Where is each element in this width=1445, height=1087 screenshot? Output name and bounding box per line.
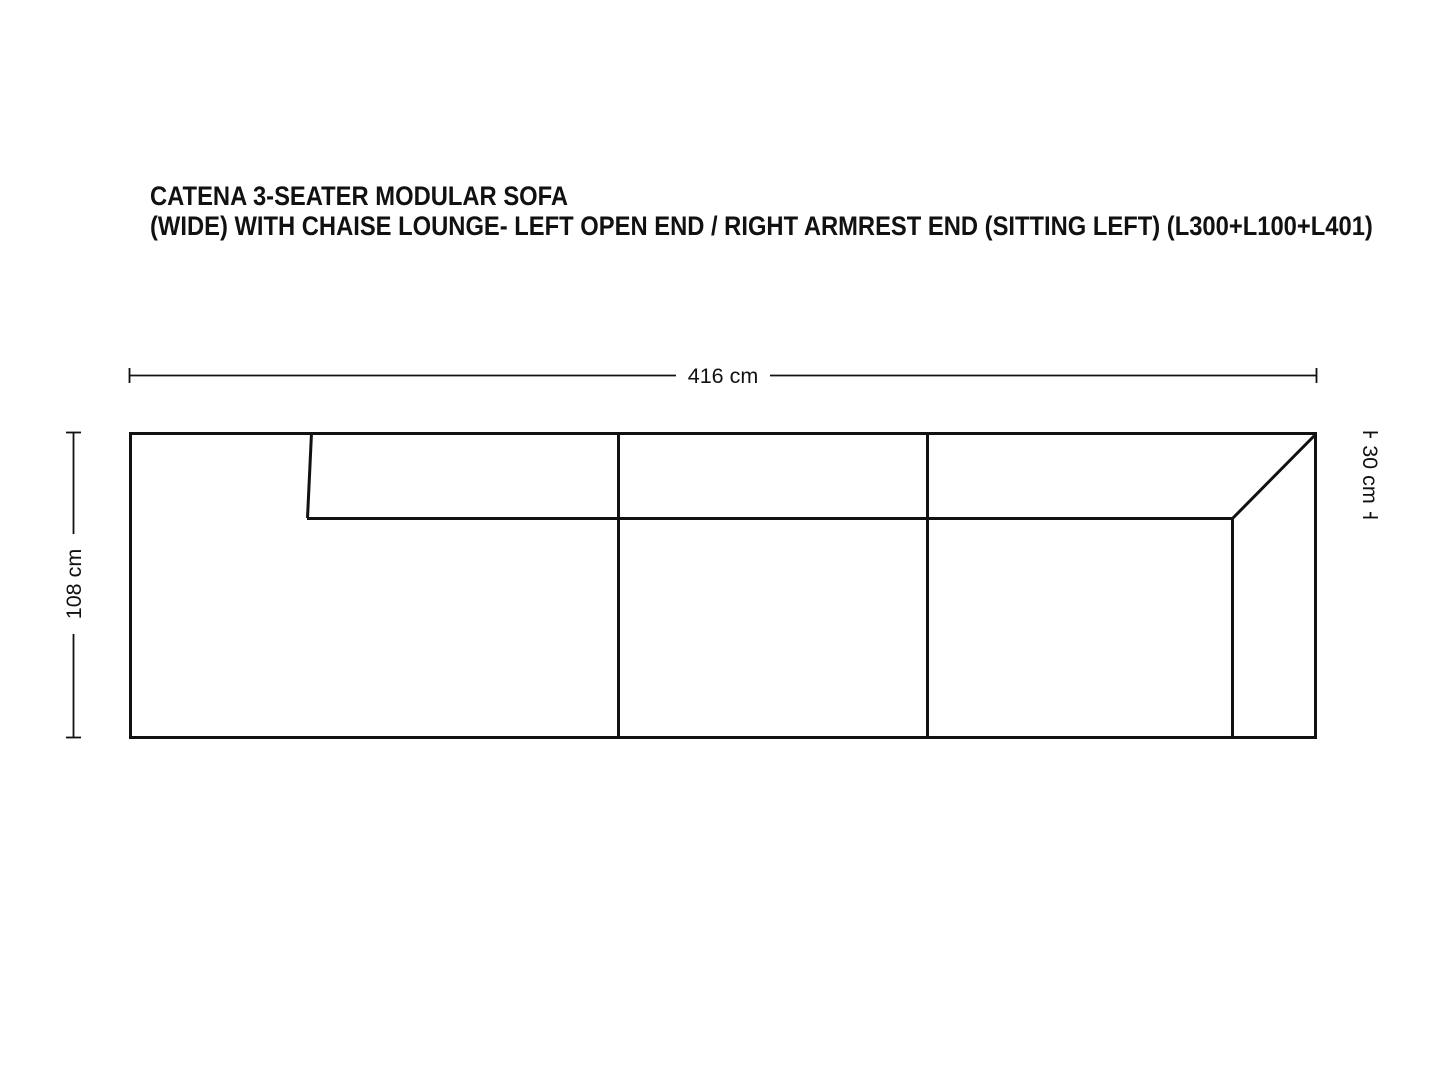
width-dimension: 416 cm <box>130 364 1317 388</box>
depth-dimension: 108 cm <box>62 433 86 738</box>
diagram-canvas: 416 cm 108 cm 30 cm <box>0 0 1445 1087</box>
depth-dimension-label: 108 cm <box>62 549 86 620</box>
armrest-dimension: 30 cm <box>1358 433 1382 518</box>
sofa-dimension-diagram: CATENA 3-SEATER MODULAR SOFA (WIDE) WITH… <box>0 0 1445 1087</box>
armrest-corner-diagonal <box>1233 435 1316 519</box>
armrest-dimension-label: 30 cm <box>1358 445 1382 504</box>
width-dimension-label: 416 cm <box>688 364 759 388</box>
sofa-drawing <box>131 432 1316 738</box>
chaise-backrest-start-line <box>308 433 312 518</box>
